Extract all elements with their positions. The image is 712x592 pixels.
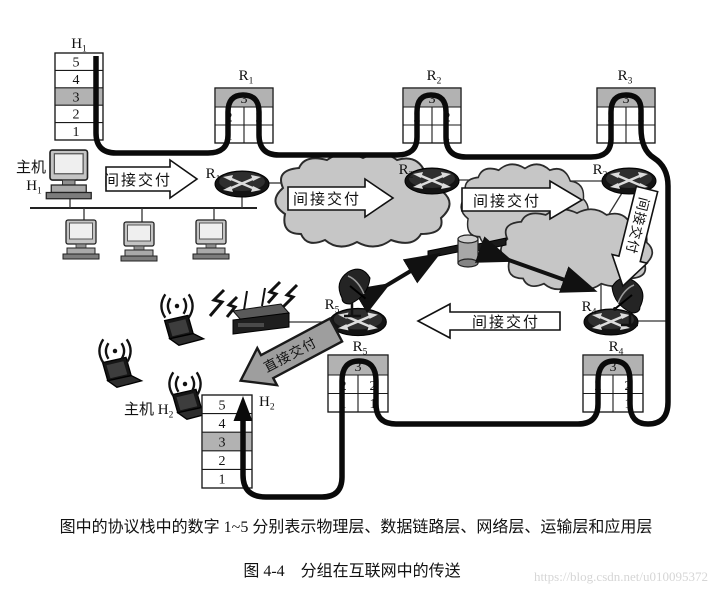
svg-text:3: 3	[73, 90, 80, 105]
caption-note: 图中的协议栈中的数字 1~5 分别表示物理层、数据链路层、网络层、运输层和应用层	[60, 517, 653, 536]
svg-text:间接交付: 间接交付	[472, 313, 540, 331]
router-r5-label: R5	[325, 297, 340, 316]
laptop-icon-2	[103, 357, 142, 387]
stack-label-r5: R5	[353, 339, 368, 358]
router-r3-label: R3	[593, 162, 608, 181]
svg-text:2: 2	[219, 454, 226, 469]
router-icon-r1	[215, 171, 269, 197]
host1-label-h1: H1	[26, 178, 42, 197]
stack-label-r3: R3	[618, 68, 633, 87]
watermark: https://blog.csdn.net/u010095372	[534, 569, 708, 584]
stack-label-r2: R2	[427, 68, 442, 87]
router-r4-label: R4	[582, 299, 597, 318]
satellite-link-arrow-left	[384, 257, 434, 287]
svg-text:4: 4	[73, 73, 80, 88]
router-r1-label: R1	[206, 166, 221, 185]
svg-text:5: 5	[219, 399, 226, 414]
svg-text:间接交付: 间接交付	[104, 171, 172, 189]
wireless-ap-icon	[233, 288, 289, 334]
svg-text:2: 2	[73, 108, 80, 123]
stack-label-h2: H2	[259, 394, 275, 413]
indirect-delivery-arrow-1: 间接交付	[104, 160, 197, 198]
caption-title: 图 4-4 分组在互联网中的传送	[243, 562, 460, 580]
stack-label-r1: R1	[239, 68, 254, 87]
svg-text:4: 4	[219, 417, 226, 432]
host2-label: 主机 H2	[124, 401, 174, 421]
network-figure: 主机 H1 R1 R2 R3 R5 R4	[0, 0, 712, 592]
host1-computer-icon	[46, 150, 91, 199]
indirect-delivery-arrow-5: 间接交付	[418, 304, 560, 338]
stack-label-h1: H1	[71, 36, 87, 55]
svg-text:1: 1	[219, 473, 226, 488]
svg-text:间接交付: 间接交付	[293, 190, 361, 208]
host1-label: 主机	[16, 159, 46, 176]
laptop-icon-1	[165, 315, 204, 345]
svg-text:间接交付: 间接交付	[473, 192, 541, 210]
stack-label-r4: R4	[609, 339, 624, 358]
svg-text:5: 5	[73, 56, 80, 71]
svg-text:1: 1	[73, 125, 80, 140]
svg-text:3: 3	[219, 436, 226, 451]
